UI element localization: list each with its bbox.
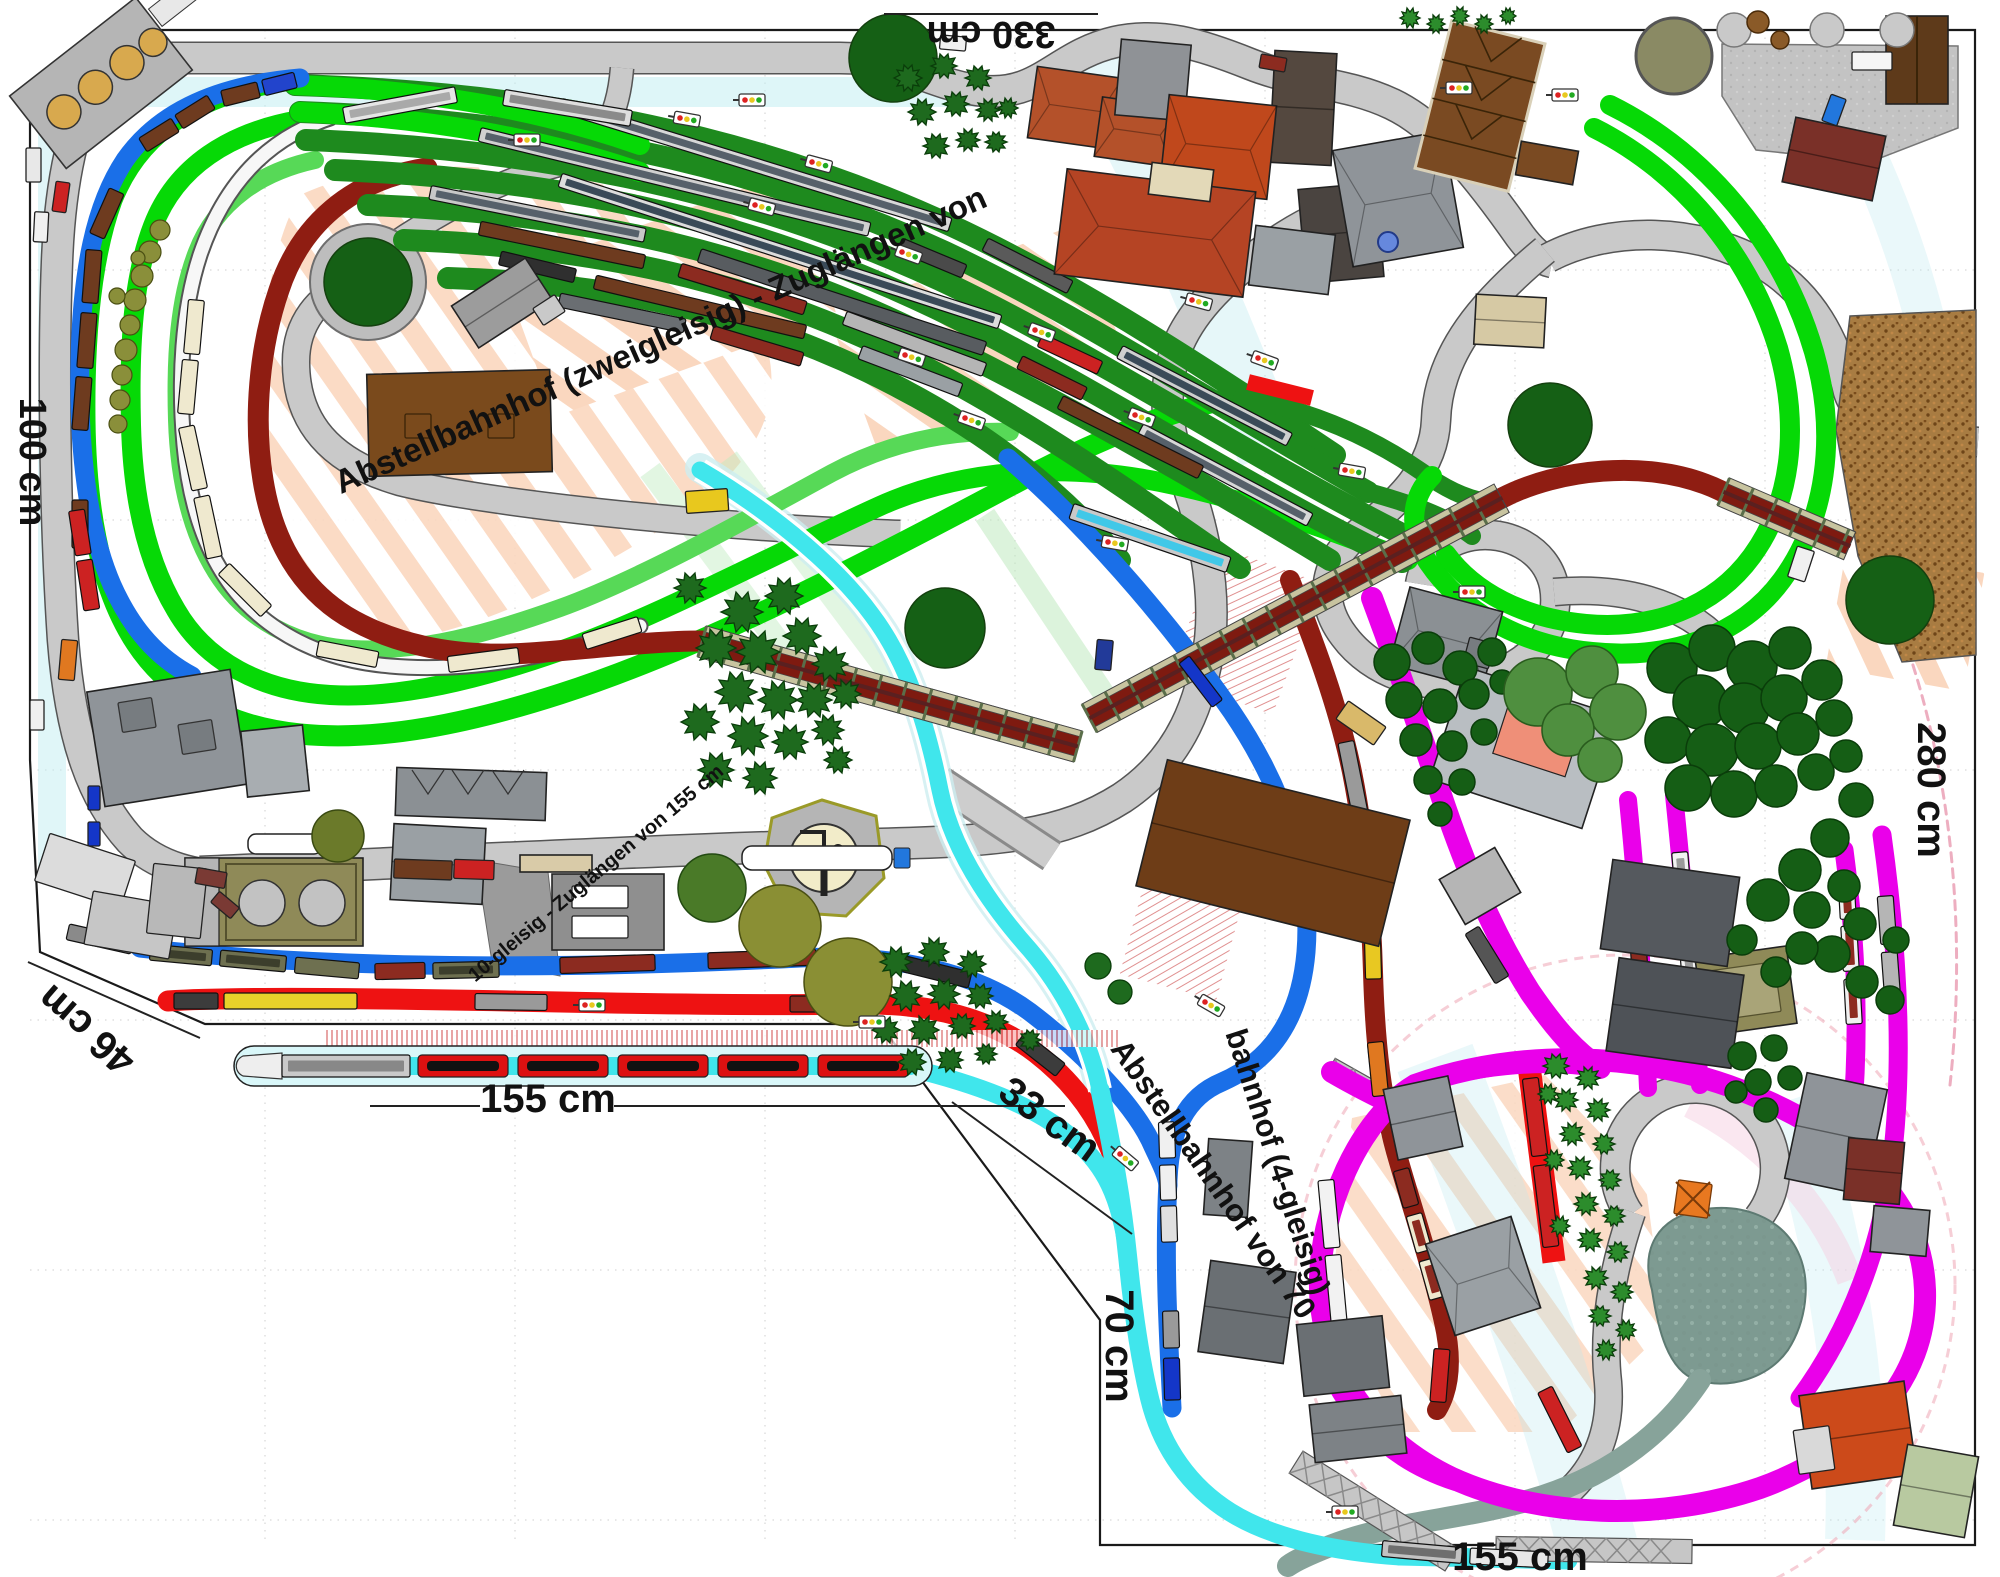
svg-text:330 cm: 330 cm — [927, 13, 1056, 55]
svg-text:100 cm: 100 cm — [11, 398, 53, 527]
svg-text:155 cm: 155 cm — [480, 1077, 616, 1121]
svg-text:280 cm: 280 cm — [1909, 722, 1953, 858]
svg-text:155 cm: 155 cm — [1452, 1535, 1588, 1577]
svg-text:70 cm: 70 cm — [1097, 1289, 1141, 1402]
